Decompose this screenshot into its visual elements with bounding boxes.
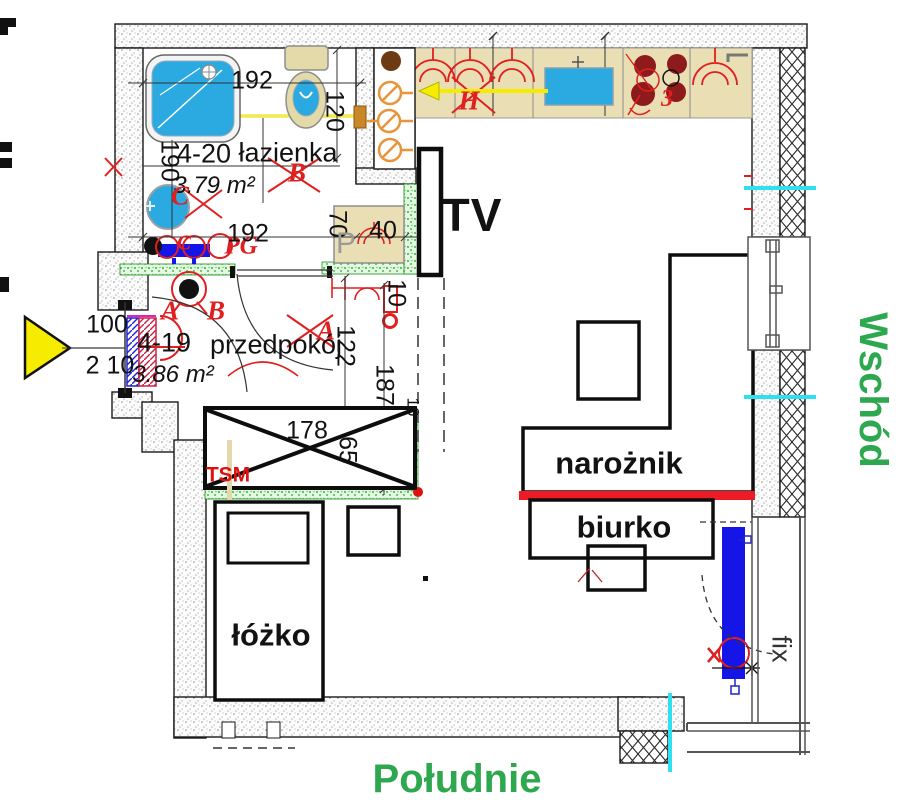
floor-plan: 192 120 190 4-20 łazienka 3.79 m² B C C … <box>0 0 924 809</box>
tv-label: TV <box>442 192 503 238</box>
washer-label: P <box>336 229 356 259</box>
bed-label: łóżko <box>231 620 310 651</box>
marker-hood-h: H <box>458 88 479 115</box>
bathroom-code: 4-20 <box>177 141 231 168</box>
dim-entry-height: 2 10 <box>86 354 135 379</box>
marker-rad-c: C <box>177 233 191 254</box>
neighbour-marks <box>0 18 16 292</box>
fix-label: fix <box>768 636 795 663</box>
desk-marks <box>578 568 602 582</box>
vent-pipe <box>381 51 401 71</box>
removed-wall-dashes <box>418 278 444 452</box>
plan-drawing <box>0 0 924 809</box>
dim-bath-height: 120 <box>322 90 347 132</box>
dim-wardrobe-width: 178 <box>286 419 328 444</box>
wall-notch <box>267 722 280 738</box>
marker-lamp-a: A <box>161 298 179 325</box>
desk-label: biurko <box>577 512 672 543</box>
dim-gap-a: 10 <box>384 279 409 307</box>
point-mark <box>423 576 428 581</box>
marker-bath-c: C <box>171 183 189 210</box>
utility-shaft <box>366 48 415 169</box>
marker-lamp-b: B <box>207 298 225 325</box>
sofa-label: narożnik <box>555 448 682 479</box>
wardrobe-tag: TSM <box>206 465 250 486</box>
dim-entry-width: 100 <box>86 313 128 338</box>
wall-notch <box>222 722 235 738</box>
hallway-name: przedpokój <box>210 332 342 359</box>
bathtub <box>146 55 240 142</box>
bed <box>215 502 323 700</box>
dim-bath-lower: 192 <box>227 222 269 247</box>
dim-bath-width: 192 <box>231 69 273 94</box>
east-window <box>748 237 810 350</box>
pipe-connector <box>354 106 366 128</box>
hallway-code: 4-19 <box>137 330 191 357</box>
dim-wardrobe-depth: 65 <box>335 436 360 464</box>
compass-east: Wschód <box>853 312 893 468</box>
dim-hall-length: 187 <box>372 364 397 406</box>
nightstand <box>348 507 399 555</box>
tv-cabinet <box>419 149 441 275</box>
compass-south: Południe <box>373 759 542 799</box>
dim-gap-b: 10 <box>405 398 422 417</box>
marker-stove-3: 3 <box>661 87 673 111</box>
hallway-area: 3.86 m² <box>132 363 213 387</box>
dim-hall-width: 122 <box>333 325 358 367</box>
marker-bath-b: B <box>288 160 306 187</box>
table <box>578 322 639 399</box>
dim-washer-width: 40 <box>369 219 397 244</box>
